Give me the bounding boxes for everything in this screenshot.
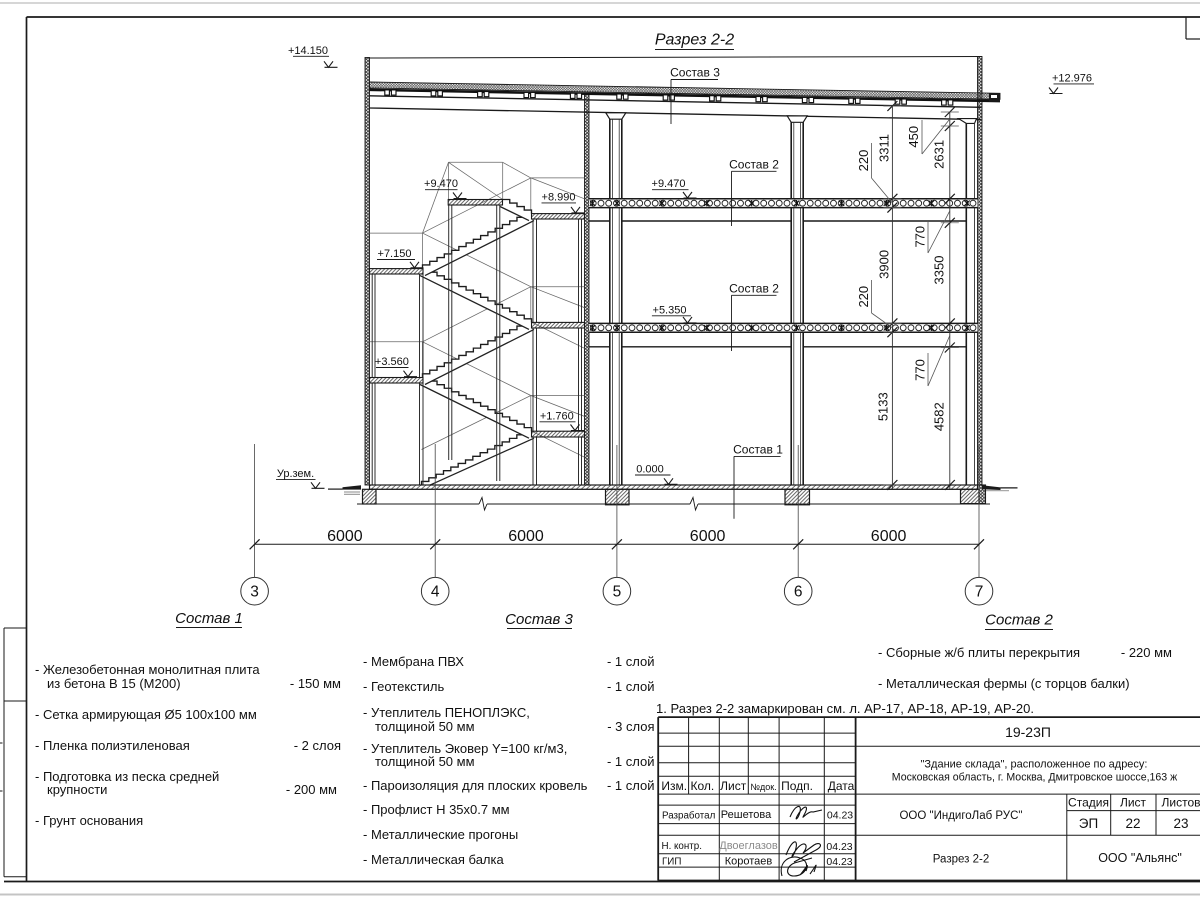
svg-text:- 1 слой: - 1 слой [607, 778, 655, 793]
svg-text:Состав 1: Состав 1 [733, 442, 783, 456]
svg-text:04.23: 04.23 [827, 810, 853, 822]
svg-text:4582: 4582 [931, 402, 946, 431]
svg-text:770: 770 [912, 226, 927, 248]
svg-text:- Геотекстиль: - Геотекстиль [363, 679, 444, 694]
svg-text:- Металлическая фермы (с торцо: - Металлическая фермы (с торцов балки) [878, 676, 1130, 691]
svg-text:+1.760: +1.760 [540, 410, 574, 422]
svg-text:Изм.: Изм. [661, 779, 687, 793]
svg-text:Состав 3: Состав 3 [505, 611, 573, 628]
svg-text:+14.150: +14.150 [288, 45, 328, 57]
svg-text:770: 770 [912, 359, 927, 381]
svg-text:- Профлист Н 35х0.7 мм: - Профлист Н 35х0.7 мм [363, 802, 510, 817]
svg-text:- Сборные ж/б плиты перекрытия: - Сборные ж/б плиты перекрытия [878, 645, 1080, 660]
svg-text:крупности: крупности [47, 782, 107, 797]
svg-text:Ур.зем.: Ур.зем. [277, 468, 314, 480]
svg-text:+7.150: +7.150 [378, 248, 412, 260]
svg-text:1. Разрез 2-2 замаркирован см.: 1. Разрез 2-2 замаркирован см. л. АР-17,… [656, 701, 1034, 716]
svg-text:+9.470: +9.470 [652, 178, 686, 190]
svg-text:Стадия: Стадия [1068, 796, 1109, 810]
svg-text:+9.470: +9.470 [424, 178, 458, 190]
svg-text:Коротаев: Коротаев [725, 856, 773, 868]
svg-text:Подп.: Подп. [781, 779, 813, 793]
svg-text:- 3 слоя: - 3 слоя [607, 719, 654, 734]
svg-text:+5.350: +5.350 [653, 304, 687, 316]
svg-text:- Металлические прогоны: - Металлические прогоны [363, 827, 518, 842]
svg-text:Лист: Лист [1120, 796, 1147, 810]
svg-text:толщиной 50 мм: толщиной 50 мм [375, 754, 475, 769]
svg-text:04.23: 04.23 [826, 841, 852, 853]
svg-text:- Железобетонная монолитная п: - Железобетонная монолитная плита [35, 662, 260, 677]
svg-text:- 200 мм: - 200 мм [286, 782, 337, 797]
svg-text:+12.976: +12.976 [1052, 72, 1092, 84]
svg-text:220: 220 [856, 150, 871, 172]
svg-text:Состав 2: Состав 2 [729, 281, 779, 295]
svg-text:5: 5 [613, 584, 622, 601]
svg-text:- Пароизоляция для плоских кро: - Пароизоляция для плоских кровель [363, 778, 588, 793]
svg-text:4: 4 [431, 584, 440, 601]
svg-text:- 1 слой: - 1 слой [607, 754, 655, 769]
svg-text:Дата: Дата [828, 779, 855, 793]
svg-text:220: 220 [856, 286, 871, 308]
svg-text:- Пленка полиэтиленовая: - Пленка полиэтиленовая [35, 738, 190, 753]
svg-text:Листов: Листов [1162, 796, 1200, 810]
svg-text:+8.990: +8.990 [542, 191, 576, 203]
svg-text:- 150 мм: - 150 мм [290, 676, 341, 691]
svg-text:№док.: №док. [750, 782, 776, 792]
svg-text:04.23: 04.23 [826, 856, 852, 868]
svg-text:- Металлическая балка: - Металлическая балка [363, 852, 504, 867]
svg-text:Московская область, г. Москва,: Московская область, г. Москва, Дмитровск… [892, 772, 1178, 784]
svg-text:ООО "ИндигоЛаб РУС": ООО "ИндигоЛаб РУС" [899, 810, 1022, 822]
svg-text:ЭП: ЭП [1079, 816, 1098, 831]
svg-text:- Сетка армирующая Ø5 100х100: - Сетка армирующая Ø5 100х100 мм [35, 707, 257, 722]
svg-text:5133: 5133 [875, 392, 890, 421]
svg-text:- 1 слой: - 1 слой [607, 679, 655, 694]
svg-text:+3.560: +3.560 [375, 356, 409, 368]
svg-text:7: 7 [975, 584, 984, 601]
svg-text:6000: 6000 [871, 528, 907, 545]
svg-text:Лист: Лист [720, 779, 747, 793]
svg-text:"Здание склада", расположенное: "Здание склада", расположенное по адресу… [921, 759, 1148, 771]
svg-text:Состав 2: Состав 2 [729, 157, 779, 171]
svg-text:6000: 6000 [690, 528, 726, 545]
svg-text:- Грунт основания: - Грунт основания [35, 813, 143, 828]
svg-text:- Мембрана ПВХ: - Мембрана ПВХ [363, 654, 464, 669]
svg-text:Двоеглазов: Двоеглазов [719, 840, 778, 852]
svg-text:Кол.: Кол. [691, 779, 715, 793]
svg-text:из бетона В 15 (М200): из бетона В 15 (М200) [47, 676, 181, 691]
svg-text:3350: 3350 [931, 256, 946, 285]
svg-text:- 2 слоя: - 2 слоя [294, 738, 341, 753]
svg-text:- 1 слой: - 1 слой [607, 654, 655, 669]
svg-text:Разработал: Разработал [662, 811, 716, 822]
svg-text:6: 6 [794, 584, 803, 601]
svg-text:6000: 6000 [508, 528, 544, 545]
svg-text:450: 450 [906, 126, 921, 148]
svg-text:ООО "Альянс": ООО "Альянс" [1098, 851, 1182, 865]
svg-text:0.000: 0.000 [636, 464, 664, 476]
svg-text:Разрез 2-2: Разрез 2-2 [655, 32, 734, 49]
svg-text:19-23П: 19-23П [1005, 724, 1051, 740]
svg-text:Состав 1: Состав 1 [175, 610, 243, 627]
svg-text:3: 3 [250, 584, 259, 601]
svg-text:23: 23 [1173, 816, 1188, 831]
svg-text:Н. контр.: Н. контр. [662, 841, 702, 852]
svg-text:Решетова: Решетова [721, 809, 772, 821]
svg-text:Разрез 2-2: Разрез 2-2 [933, 854, 989, 866]
svg-text:3900: 3900 [876, 250, 891, 279]
svg-text:Состав 2: Состав 2 [985, 612, 1053, 629]
svg-text:- 220 мм: - 220 мм [1121, 645, 1172, 660]
svg-text:Состав 3: Состав 3 [670, 66, 720, 80]
svg-text:22: 22 [1125, 816, 1140, 831]
svg-text:- Утеплитель ПЕНОПЛЭКС,: - Утеплитель ПЕНОПЛЭКС, [363, 705, 530, 720]
svg-text:2631: 2631 [931, 140, 946, 169]
svg-text:6000: 6000 [327, 528, 363, 545]
svg-text:3311: 3311 [876, 134, 891, 162]
svg-text:ГИП: ГИП [662, 857, 681, 868]
svg-text:толщиной 50 мм: толщиной 50 мм [375, 719, 475, 734]
